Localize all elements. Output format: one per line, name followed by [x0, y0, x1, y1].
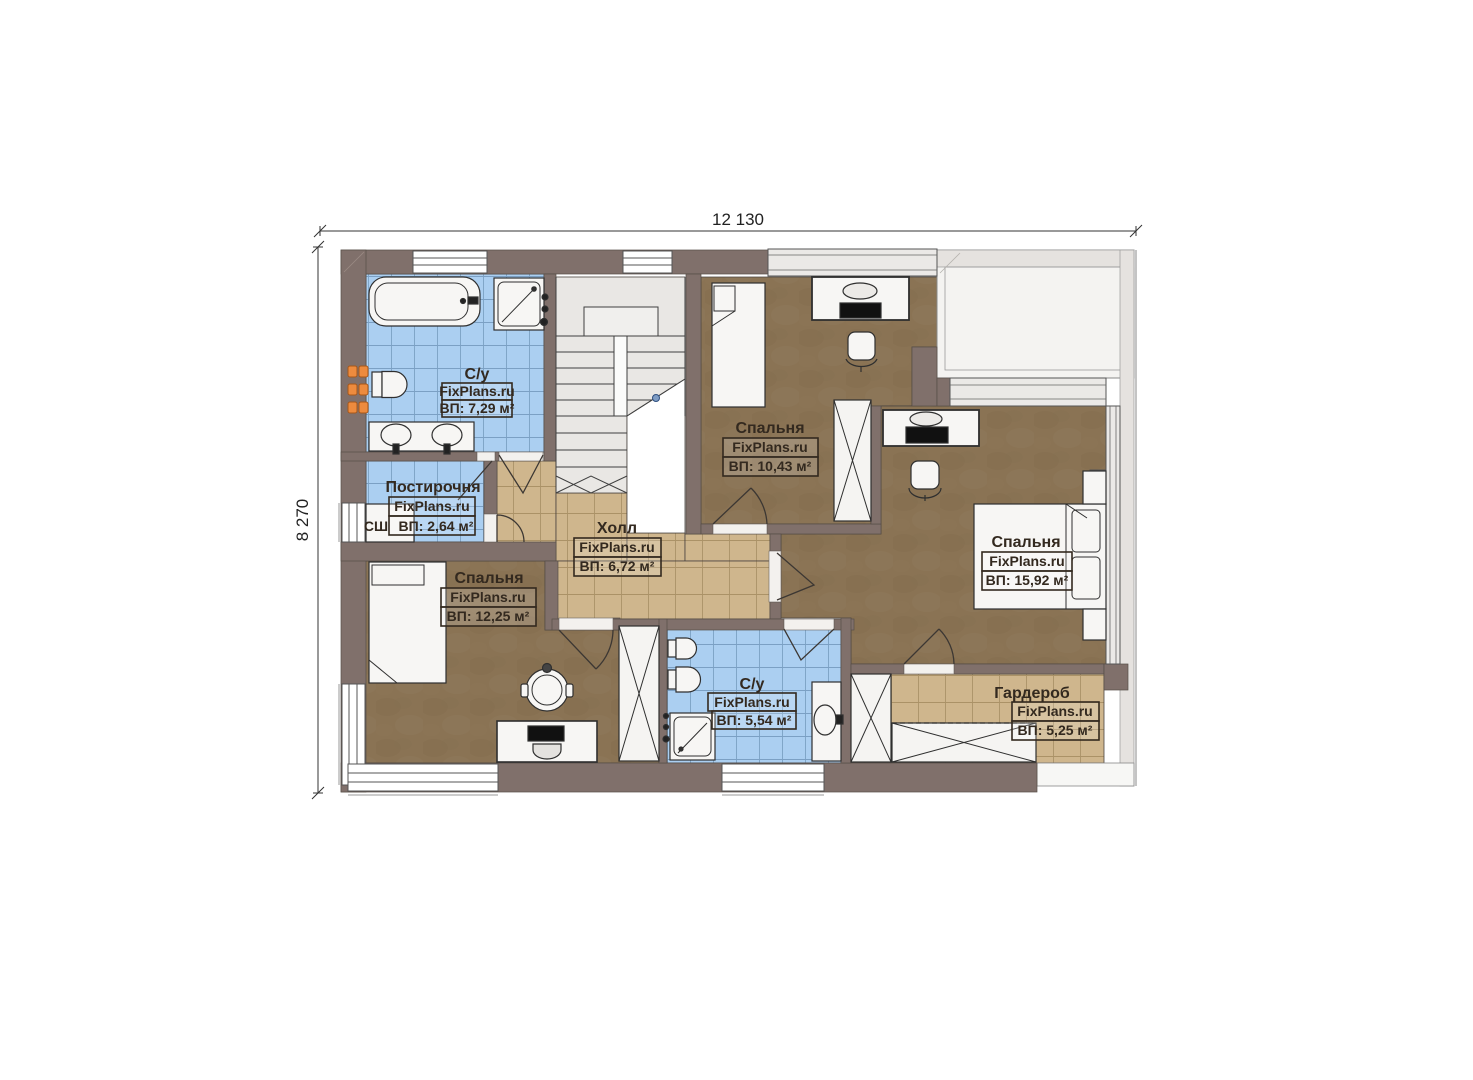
svg-text:С/у: С/у: [465, 366, 490, 383]
svg-text:Холл: Холл: [597, 520, 637, 537]
svg-text:ВП: 2,64 м²: ВП: 2,64 м²: [399, 518, 474, 534]
svg-text:СШ: СШ: [364, 518, 388, 534]
svg-text:Спальня: Спальня: [735, 420, 804, 437]
svg-text:12 130: 12 130: [712, 210, 764, 229]
svg-text:FixPlans.ru: FixPlans.ru: [714, 694, 789, 710]
svg-text:FixPlans.ru: FixPlans.ru: [1017, 703, 1092, 719]
svg-text:ВП: 7,29 м²: ВП: 7,29 м²: [440, 400, 515, 416]
svg-text:8 270: 8 270: [293, 499, 312, 542]
svg-text:FixPlans.ru: FixPlans.ru: [394, 498, 469, 514]
svg-text:ВП: 5,25 м²: ВП: 5,25 м²: [1018, 722, 1093, 738]
svg-text:ВП: 5,54 м²: ВП: 5,54 м²: [717, 712, 792, 728]
svg-text:FixPlans.ru: FixPlans.ru: [579, 539, 654, 555]
svg-text:FixPlans.ru: FixPlans.ru: [439, 383, 514, 399]
svg-text:ВП: 6,72 м²: ВП: 6,72 м²: [580, 558, 655, 574]
svg-text:Спальня: Спальня: [991, 534, 1060, 551]
svg-text:Постирочня: Постирочня: [385, 479, 480, 496]
svg-text:Спальня: Спальня: [454, 570, 523, 587]
svg-text:Гардероб: Гардероб: [994, 685, 1070, 702]
svg-text:ВП: 12,25 м²: ВП: 12,25 м²: [447, 608, 530, 624]
svg-text:FixPlans.ru: FixPlans.ru: [989, 553, 1064, 569]
svg-text:FixPlans.ru: FixPlans.ru: [732, 439, 807, 455]
svg-text:С/у: С/у: [740, 676, 765, 693]
svg-text:ВП: 10,43 м²: ВП: 10,43 м²: [729, 458, 812, 474]
svg-text:FixPlans.ru: FixPlans.ru: [450, 589, 525, 605]
svg-text:ВП: 15,92 м²: ВП: 15,92 м²: [986, 572, 1069, 588]
